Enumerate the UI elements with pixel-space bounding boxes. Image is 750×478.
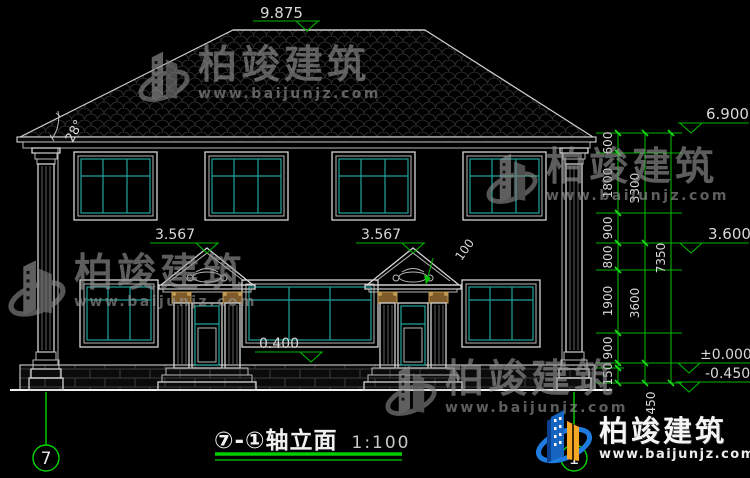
second-floor-window-2 bbox=[205, 152, 288, 220]
drawing-title: ⑦-①轴立面 bbox=[214, 421, 338, 455]
dim-7350: 7350 bbox=[654, 243, 668, 274]
svg-text:9.875: 9.875 bbox=[260, 4, 303, 22]
pediment-ornament bbox=[187, 269, 227, 283]
dim-900b: 900 bbox=[601, 337, 615, 360]
svg-text:3.600: 3.600 bbox=[708, 225, 750, 243]
axis-bubble-left: 7 bbox=[33, 392, 59, 471]
dim-1900: 1900 bbox=[601, 286, 615, 317]
corinthian-capitals bbox=[172, 292, 242, 303]
corinthian-capitals bbox=[378, 292, 448, 303]
elevation-marker-ridge: 9.875 bbox=[253, 4, 320, 31]
dimension-chain: 600 1800 900 800 1900 900 150 3300 3600 … bbox=[596, 130, 682, 414]
pediment-dim-annotation: 100 bbox=[424, 236, 477, 284]
axis-number-left: 7 bbox=[41, 449, 52, 469]
elevation-drawing-canvas: 28° 100 9.875 3.567 3.567 0.400 6.900 3.… bbox=[0, 0, 750, 478]
dim-150: 150 bbox=[601, 363, 615, 386]
first-floor-window-left bbox=[80, 280, 158, 347]
svg-text:-0.450: -0.450 bbox=[705, 366, 750, 382]
brand-name: 柏竣建筑 bbox=[599, 416, 750, 446]
dim-900a: 900 bbox=[601, 217, 615, 240]
second-floor-window-3 bbox=[332, 152, 415, 220]
svg-text:±0.000: ±0.000 bbox=[700, 347, 750, 363]
svg-text:3.567: 3.567 bbox=[361, 227, 401, 243]
first-floor-window-right bbox=[462, 280, 540, 347]
dim-1800: 1800 bbox=[601, 168, 615, 199]
svg-text:0.400: 0.400 bbox=[259, 336, 299, 352]
dim-3300: 3300 bbox=[628, 173, 642, 204]
brand-logo: 柏竣建筑 www.baijunjz.com bbox=[534, 403, 750, 475]
brand-logo-icon bbox=[534, 403, 594, 475]
elevation-marker-mid: 3.600 bbox=[678, 225, 750, 253]
door-left bbox=[192, 303, 222, 368]
dim-3600: 3600 bbox=[628, 288, 642, 319]
drawing-title-bar: ⑦-①轴立面 1:100 bbox=[214, 421, 411, 455]
wall-outline bbox=[58, 148, 562, 365]
dim-600: 600 bbox=[601, 132, 615, 155]
stone-plinth bbox=[20, 365, 595, 390]
door-right bbox=[398, 303, 428, 368]
second-floor-window-1 bbox=[74, 152, 157, 220]
eave-cornice bbox=[17, 137, 596, 148]
roof-outline bbox=[20, 30, 593, 137]
svg-text:3.567: 3.567 bbox=[155, 227, 195, 243]
dim-800: 800 bbox=[601, 246, 615, 269]
elevation-marker-ground: -0.450 bbox=[676, 366, 750, 392]
svg-text:6.900: 6.900 bbox=[706, 105, 749, 123]
pediment-dim-label: 100 bbox=[452, 236, 477, 263]
brand-url: www.baijunjz.com bbox=[599, 447, 750, 462]
second-floor-window-4 bbox=[463, 152, 546, 220]
elevation-marker-eave: 6.900 bbox=[678, 105, 749, 133]
hip-roof bbox=[20, 30, 593, 137]
drawing-scale: 1:100 bbox=[352, 433, 411, 453]
